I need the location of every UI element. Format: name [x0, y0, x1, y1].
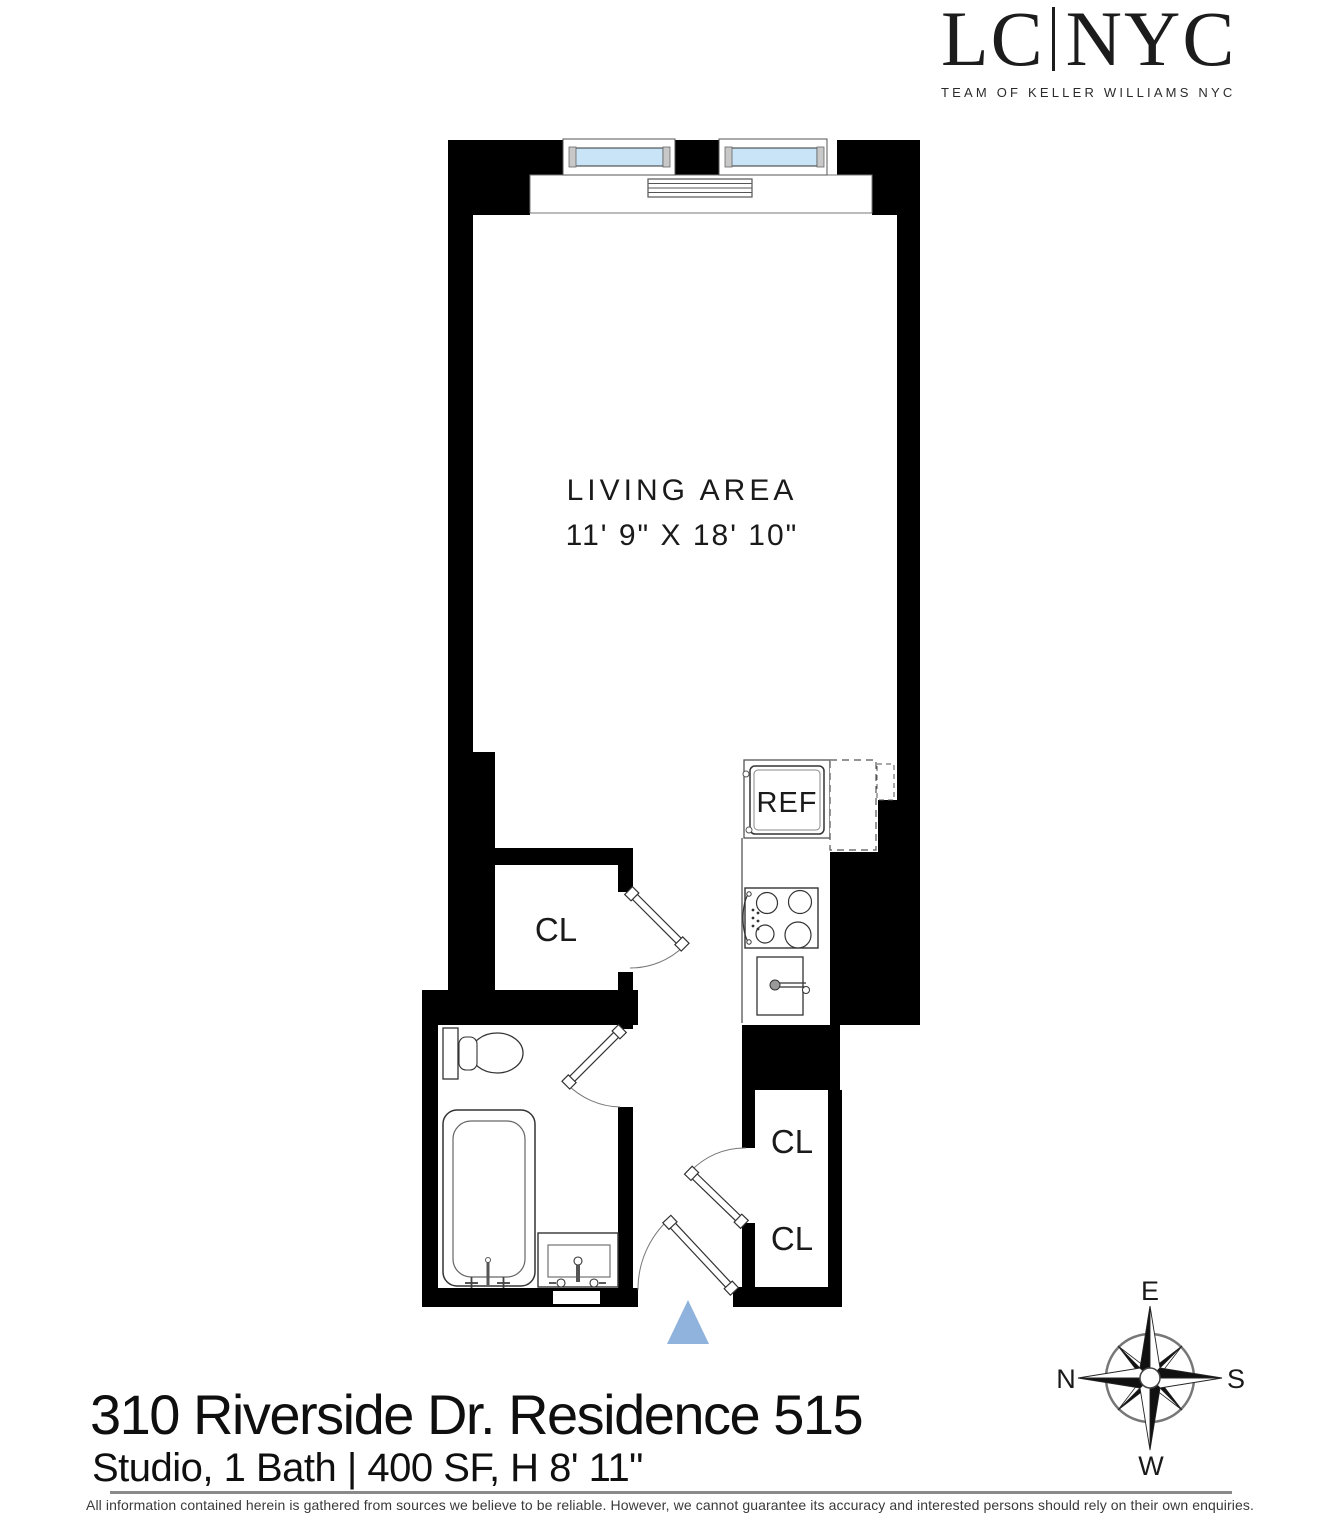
refrigerator-label: REF [757, 787, 818, 819]
stove-icon [743, 888, 818, 948]
vanity-sink-icon [538, 1233, 618, 1287]
disclaimer-text: All information contained herein is gath… [0, 1497, 1340, 1513]
entry-door-icon [638, 1215, 738, 1295]
hall-closet-door-icon [625, 887, 689, 968]
hall-closet-label: CL [535, 911, 577, 948]
listing-subtitle: Studio, 1 Bath | 400 SF, H 8' 11" [92, 1446, 643, 1490]
compass-right-label: S [1227, 1364, 1245, 1394]
living-area-label: LIVING AREA [567, 474, 798, 507]
bathtub-icon [443, 1110, 535, 1288]
toilet-icon [443, 1028, 523, 1079]
entry-closet-lower-label: CL [771, 1220, 813, 1257]
window-icon [563, 139, 675, 175]
radiator-icon [648, 179, 752, 197]
kitchen-sink-icon [757, 957, 810, 1015]
footer-divider [110, 1491, 1232, 1494]
compass-left-label: N [1056, 1364, 1076, 1394]
floor-plan: REF [0, 0, 1340, 1524]
compass-rose-icon: E N S W [1056, 1276, 1245, 1481]
window-icon [719, 139, 827, 175]
compass-top-label: E [1141, 1276, 1159, 1306]
listing-title: 310 Riverside Dr. Residence 515 [90, 1384, 862, 1446]
entry-closet-door-icon [685, 1148, 749, 1228]
living-area-dimensions: 11' 9" X 18' 10" [566, 519, 799, 552]
entry-closet-upper-label: CL [771, 1123, 813, 1160]
bathroom-door-icon [562, 1025, 626, 1107]
wall-notch [553, 1291, 600, 1304]
compass-bottom-label: W [1138, 1451, 1164, 1481]
entry-marker-icon [667, 1300, 709, 1344]
